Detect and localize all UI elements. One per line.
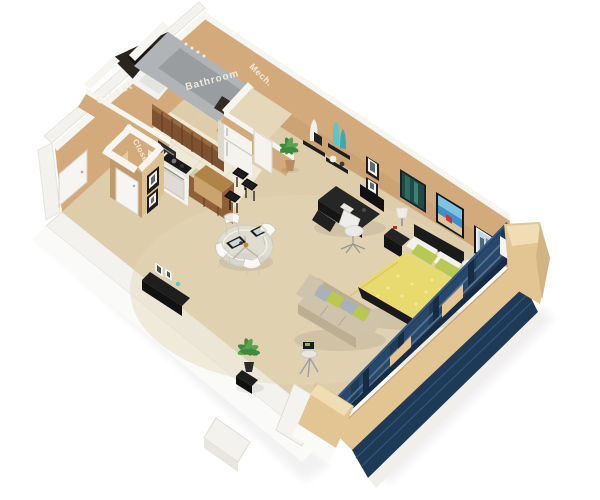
- console-vase: [176, 282, 180, 286]
- decor-bowl: [340, 162, 345, 167]
- nightstand-decor-red: [393, 226, 397, 229]
- pan: [180, 164, 184, 168]
- table-decor: [239, 241, 243, 245]
- desk-lamp-base: [362, 208, 366, 212]
- entry-door-knob: [81, 171, 84, 174]
- floor-plan-render: Closet Bathroom Mech. Closet: [0, 0, 600, 500]
- pot: [172, 159, 177, 164]
- decor-sphere: [330, 156, 337, 163]
- office-chair-seat: [345, 226, 363, 237]
- floor-plan-canvas: Closet Bathroom Mech. Closet: [0, 0, 600, 500]
- decanter: [244, 243, 249, 248]
